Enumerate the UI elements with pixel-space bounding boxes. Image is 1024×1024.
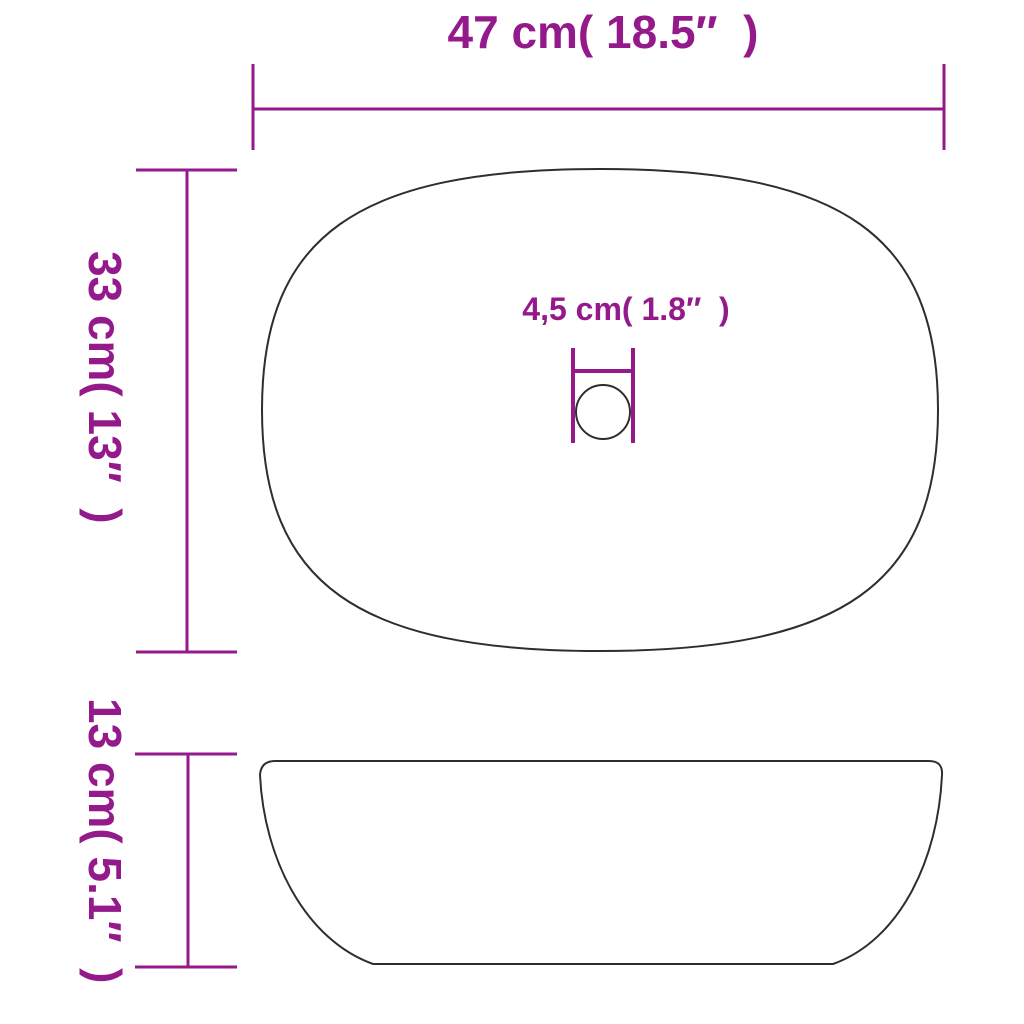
dimension-diagram: 47 cm( 18.5″ ) 33 cm( 13″ ) 4,5 cm( 1.8″… bbox=[0, 0, 1024, 1024]
side-view-basin-outline bbox=[260, 761, 942, 964]
width-dimension-label: 47 cm( 18.5″ ) bbox=[423, 6, 783, 58]
drain-hole-circle bbox=[576, 385, 630, 439]
drain-dimension-label: 4,5 cm( 1.8″ ) bbox=[506, 291, 746, 327]
top-view-basin-outline bbox=[262, 169, 938, 651]
height-dimension bbox=[135, 754, 237, 967]
depth-dimension bbox=[136, 170, 237, 652]
diagram-drawing bbox=[0, 0, 1024, 1024]
width-dimension bbox=[253, 64, 944, 150]
depth-dimension-label: 33 cm( 13″ ) bbox=[79, 251, 131, 524]
height-dimension-label: 13 cm( 5.1″ ) bbox=[79, 698, 131, 983]
